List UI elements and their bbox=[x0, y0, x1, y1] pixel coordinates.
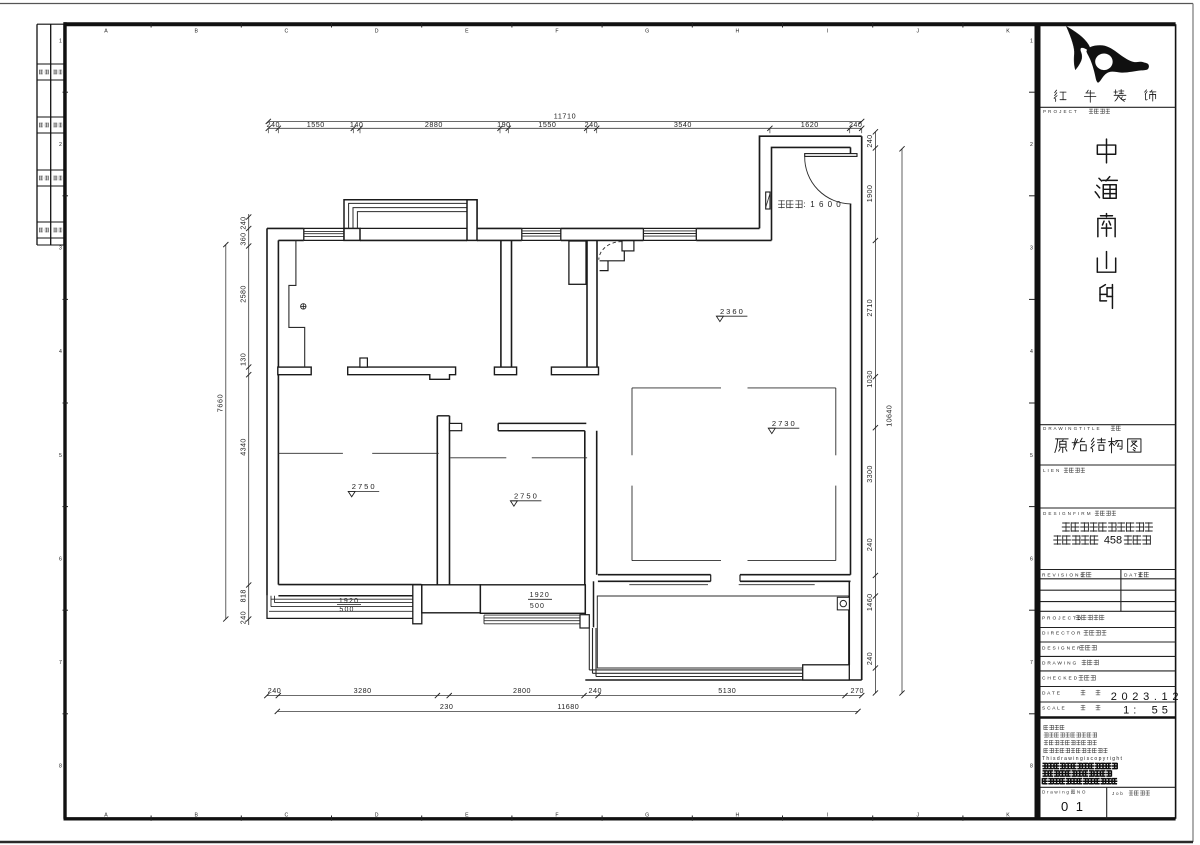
svg-text:240: 240 bbox=[865, 538, 874, 551]
svg-text:500: 500 bbox=[530, 603, 545, 610]
svg-text:P R O J E C T: P R O J E C T bbox=[1043, 109, 1077, 114]
svg-text:1030: 1030 bbox=[865, 370, 874, 388]
svg-text:458: 458 bbox=[1104, 535, 1122, 547]
svg-text:4: 4 bbox=[59, 349, 62, 355]
svg-text:270: 270 bbox=[851, 686, 865, 695]
svg-text:1 6 0 0: 1 6 0 0 bbox=[810, 200, 841, 209]
svg-text:240: 240 bbox=[239, 611, 248, 624]
svg-text:240: 240 bbox=[268, 686, 282, 695]
svg-text:H: H bbox=[736, 29, 740, 35]
svg-text:3: 3 bbox=[59, 246, 62, 252]
svg-text:F: F bbox=[555, 29, 558, 35]
svg-text:6: 6 bbox=[1030, 556, 1033, 562]
svg-text:G: G bbox=[645, 29, 649, 35]
svg-text:D E S I G N F I R M: D E S I G N F I R M bbox=[1043, 511, 1091, 516]
svg-text:10640: 10640 bbox=[885, 405, 894, 427]
svg-text:2750: 2750 bbox=[514, 492, 539, 501]
svg-text:2800: 2800 bbox=[513, 686, 531, 695]
svg-text:4340: 4340 bbox=[239, 438, 248, 456]
svg-text:G: G bbox=[645, 813, 649, 819]
svg-text:D R A W I N G T I T L E: D R A W I N G T I T L E bbox=[1043, 426, 1100, 431]
svg-text:240: 240 bbox=[239, 216, 248, 229]
svg-text:D A T E: D A T E bbox=[1042, 691, 1060, 697]
svg-text:1620: 1620 bbox=[801, 120, 819, 129]
svg-text:3300: 3300 bbox=[865, 465, 874, 483]
svg-text:3540: 3540 bbox=[674, 120, 692, 129]
svg-text:140: 140 bbox=[350, 120, 364, 129]
svg-text:2360: 2360 bbox=[720, 307, 745, 316]
svg-text:2: 2 bbox=[59, 142, 62, 148]
svg-text:D I R E C T O R: D I R E C T O R bbox=[1042, 631, 1081, 637]
svg-text:190: 190 bbox=[497, 120, 511, 129]
svg-text:1900: 1900 bbox=[865, 185, 874, 203]
svg-text:1: 1 bbox=[59, 38, 62, 44]
svg-text:818: 818 bbox=[239, 589, 248, 602]
svg-text:E: E bbox=[465, 29, 469, 35]
svg-text:B: B bbox=[194, 813, 198, 819]
svg-text:P R O J E C T D: P R O J E C T D bbox=[1042, 615, 1082, 621]
svg-text:K: K bbox=[1006, 813, 1010, 819]
svg-text:A: A bbox=[104, 813, 108, 819]
svg-text:D E S I G N E R: D E S I G N E R bbox=[1042, 646, 1081, 652]
svg-text:1460: 1460 bbox=[865, 594, 874, 612]
svg-text:D r a w i n g 图 N O: D r a w i n g 图 N O bbox=[1042, 790, 1086, 796]
svg-text:130: 130 bbox=[239, 353, 248, 366]
svg-text:C: C bbox=[285, 813, 289, 819]
svg-text:1920: 1920 bbox=[530, 592, 550, 599]
svg-text:3: 3 bbox=[1030, 246, 1033, 252]
svg-text:2750: 2750 bbox=[352, 482, 377, 491]
svg-text:500: 500 bbox=[339, 607, 354, 614]
svg-text:7: 7 bbox=[1030, 660, 1033, 666]
svg-text:0 1: 0 1 bbox=[1061, 799, 1085, 814]
svg-text:D: D bbox=[375, 813, 379, 819]
svg-text:240: 240 bbox=[865, 652, 874, 665]
svg-text:L I E N: L I E N bbox=[1043, 468, 1060, 473]
svg-text:240: 240 bbox=[589, 686, 603, 695]
svg-text:D A T E: D A T E bbox=[1124, 573, 1142, 579]
svg-text:2 0 2 3 . 1 2: 2 0 2 3 . 1 2 bbox=[1111, 691, 1180, 703]
svg-text:C: C bbox=[285, 29, 289, 35]
svg-text:2710: 2710 bbox=[865, 299, 874, 317]
svg-text:J o b: J o b bbox=[1112, 791, 1123, 796]
svg-text:5130: 5130 bbox=[718, 686, 736, 695]
svg-text:360: 360 bbox=[239, 232, 248, 245]
svg-text:2: 2 bbox=[1030, 142, 1033, 148]
svg-text:I: I bbox=[827, 813, 828, 819]
svg-text:7660: 7660 bbox=[216, 394, 225, 412]
svg-text:D R A W I N G: D R A W I N G bbox=[1042, 660, 1077, 666]
svg-text:5: 5 bbox=[59, 453, 62, 459]
svg-text:C H E C K E D: C H E C K E D bbox=[1042, 676, 1078, 682]
svg-text:230: 230 bbox=[440, 702, 454, 711]
svg-text:1 :: 1 : bbox=[1123, 704, 1137, 716]
svg-text:240: 240 bbox=[585, 120, 599, 129]
svg-text:11680: 11680 bbox=[557, 702, 579, 711]
svg-text:5 5: 5 5 bbox=[1152, 704, 1169, 716]
svg-text:D: D bbox=[375, 29, 379, 35]
svg-text:J: J bbox=[917, 813, 920, 819]
svg-text:4: 4 bbox=[1030, 349, 1033, 355]
svg-text:6: 6 bbox=[59, 556, 62, 562]
svg-text:K: K bbox=[1006, 29, 1010, 35]
svg-text:T h i s d r a w i n g i s: T h i s d r a w i n g i s c o p y r i g … bbox=[1042, 756, 1123, 762]
svg-text:8: 8 bbox=[59, 764, 62, 770]
svg-text:7: 7 bbox=[59, 660, 62, 666]
svg-text:2880: 2880 bbox=[425, 120, 443, 129]
svg-text:2580: 2580 bbox=[239, 285, 248, 303]
svg-text:I: I bbox=[827, 29, 828, 35]
svg-text:1: 1 bbox=[1030, 38, 1033, 44]
svg-text:1550: 1550 bbox=[538, 120, 556, 129]
svg-text:E: E bbox=[465, 813, 469, 819]
svg-text:8: 8 bbox=[1030, 764, 1033, 770]
svg-text:5: 5 bbox=[1030, 453, 1033, 459]
svg-text:1920: 1920 bbox=[339, 598, 359, 605]
svg-text:J: J bbox=[917, 29, 920, 35]
svg-text:3280: 3280 bbox=[354, 686, 372, 695]
svg-text:B: B bbox=[194, 29, 198, 35]
svg-text:1550: 1550 bbox=[307, 120, 325, 129]
svg-text:11710: 11710 bbox=[554, 112, 576, 121]
svg-text:2730: 2730 bbox=[772, 419, 797, 428]
svg-text:A: A bbox=[104, 29, 108, 35]
svg-text::: : bbox=[803, 200, 805, 209]
svg-text:F: F bbox=[555, 813, 558, 819]
svg-text:H: H bbox=[736, 813, 740, 819]
svg-text:240: 240 bbox=[849, 120, 863, 129]
svg-text:240: 240 bbox=[865, 134, 874, 147]
svg-text:240: 240 bbox=[267, 120, 281, 129]
svg-text:S C A L E: S C A L E bbox=[1042, 706, 1065, 712]
svg-text:R E V I S I O N S: R E V I S I O N S bbox=[1042, 573, 1084, 579]
